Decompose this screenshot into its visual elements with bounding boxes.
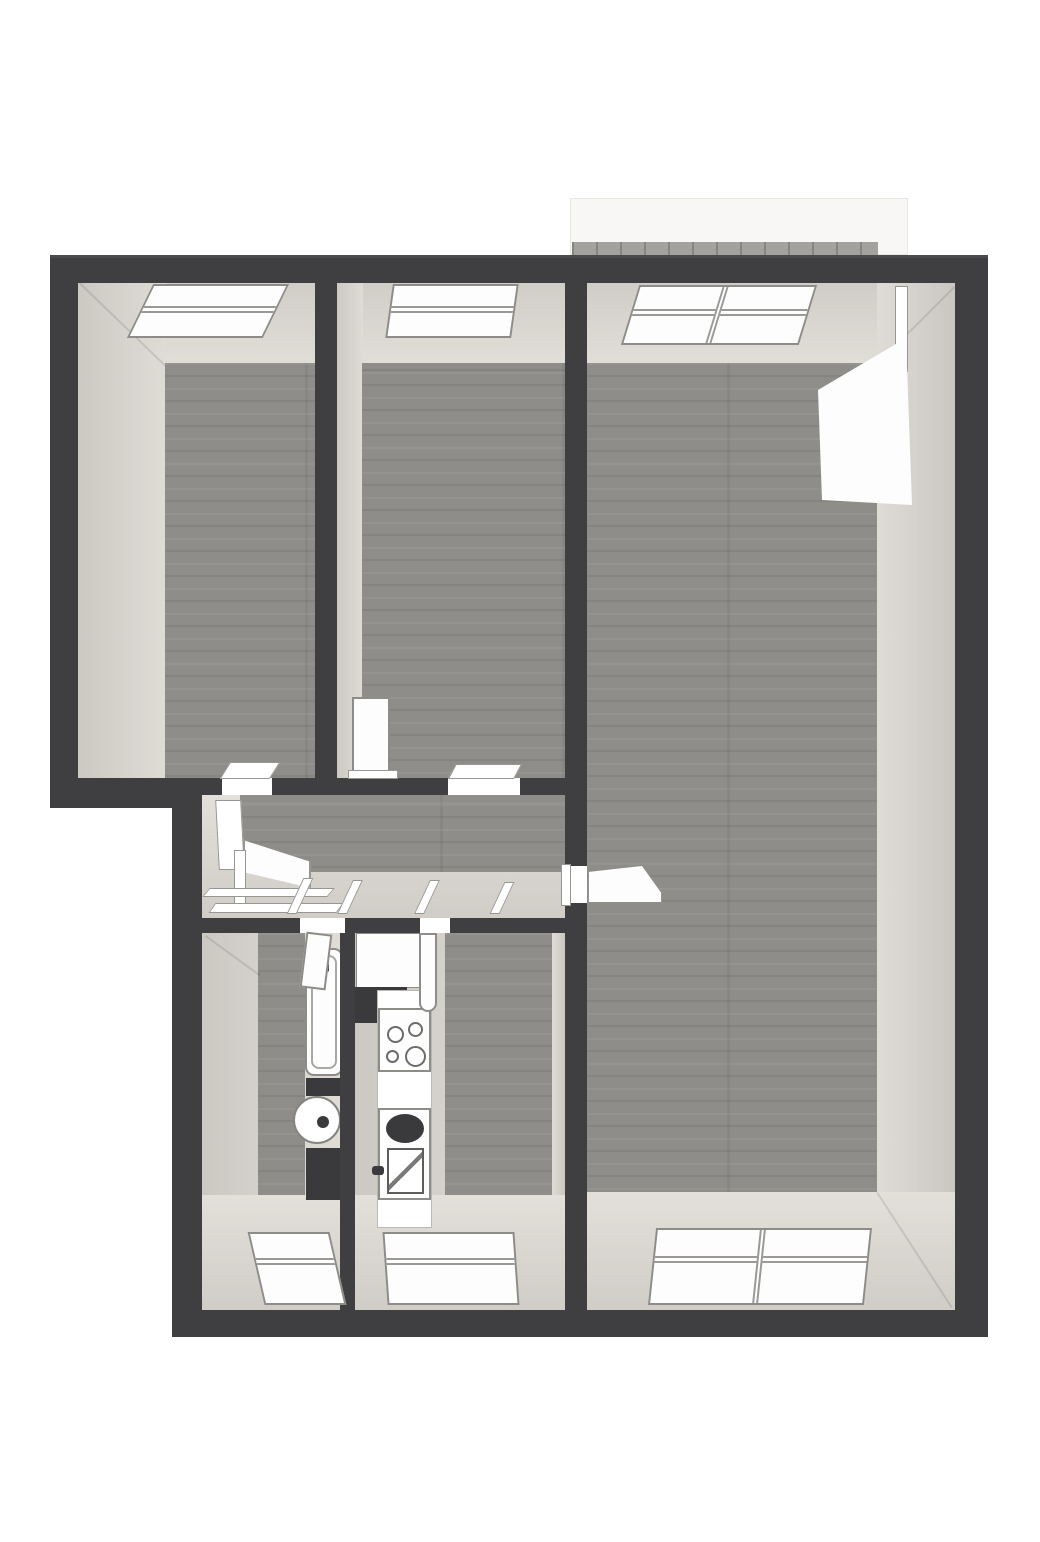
wall-bedrooms-divider	[315, 255, 337, 795]
wall-hallway-bottom-b	[345, 918, 420, 933]
bath-shelf	[306, 1078, 343, 1096]
burner	[387, 1026, 404, 1043]
bedroom-top-left-window	[127, 284, 289, 338]
wall-under-bedrooms-a	[202, 778, 222, 795]
room-bedroom-top-left	[78, 280, 315, 778]
burner	[408, 1022, 423, 1037]
window-rail	[141, 306, 276, 313]
living-top-window	[621, 285, 817, 345]
wall-bottom	[172, 1310, 988, 1337]
kitchen-door-leaf	[419, 933, 437, 1012]
window-mullion	[752, 1230, 766, 1303]
living-door-jamb	[561, 864, 571, 906]
balcony-brick-edge	[572, 242, 878, 255]
wall-hallway-bottom-c	[450, 918, 587, 933]
bedroom-top-left-threshold	[220, 762, 281, 779]
burner	[405, 1046, 426, 1067]
sink-basin	[387, 1148, 424, 1194]
wall-hallway-bottom-a	[202, 918, 300, 933]
window-rail	[256, 1258, 336, 1265]
wall-under-bedrooms-c	[520, 778, 567, 795]
bedroom-door-frame-base	[348, 770, 398, 779]
wall-top	[50, 255, 988, 283]
window-rail	[386, 1258, 514, 1265]
wall-outer-highlight	[50, 255, 988, 258]
wall-living-divider-upper	[565, 255, 587, 866]
wall-under-bedrooms-b	[272, 778, 448, 795]
kitchen-floor	[445, 933, 552, 1195]
kitchen-sink-unit	[378, 1108, 431, 1200]
bedroom-top-middle-window	[385, 284, 519, 338]
sink-drainer	[386, 1114, 424, 1143]
living-bottom-window	[648, 1228, 872, 1305]
wall-right	[955, 255, 988, 1337]
floor-plan	[0, 0, 1040, 1542]
sink-faucet	[372, 1166, 384, 1175]
entry-threshold-rail	[208, 903, 343, 913]
kitchen-right-wallface	[552, 933, 565, 1195]
entry-threshold-rail	[202, 888, 335, 897]
basin-faucet	[317, 1116, 329, 1128]
bathroom-floor	[258, 933, 305, 1195]
wall-bath-kitchen-divider	[340, 933, 355, 1310]
kitchen-window	[382, 1232, 519, 1305]
cooktop	[378, 1008, 431, 1072]
washbasin	[293, 1096, 341, 1144]
wall-left-lower	[172, 808, 202, 1337]
bedroom-top-middle-floor	[362, 363, 565, 778]
bathroom-window	[248, 1232, 347, 1305]
burner	[386, 1050, 399, 1063]
bedroom-top-middle-door-leaf	[352, 697, 390, 778]
bath-cabinet	[306, 1148, 343, 1200]
window-rail	[391, 306, 514, 313]
wall-left-upper	[50, 255, 78, 808]
bedroom-top-left-floor	[165, 363, 315, 778]
wall-living-divider-lower	[565, 903, 587, 1310]
wall-step	[50, 778, 202, 808]
bedroom-top-middle-threshold	[448, 764, 522, 779]
